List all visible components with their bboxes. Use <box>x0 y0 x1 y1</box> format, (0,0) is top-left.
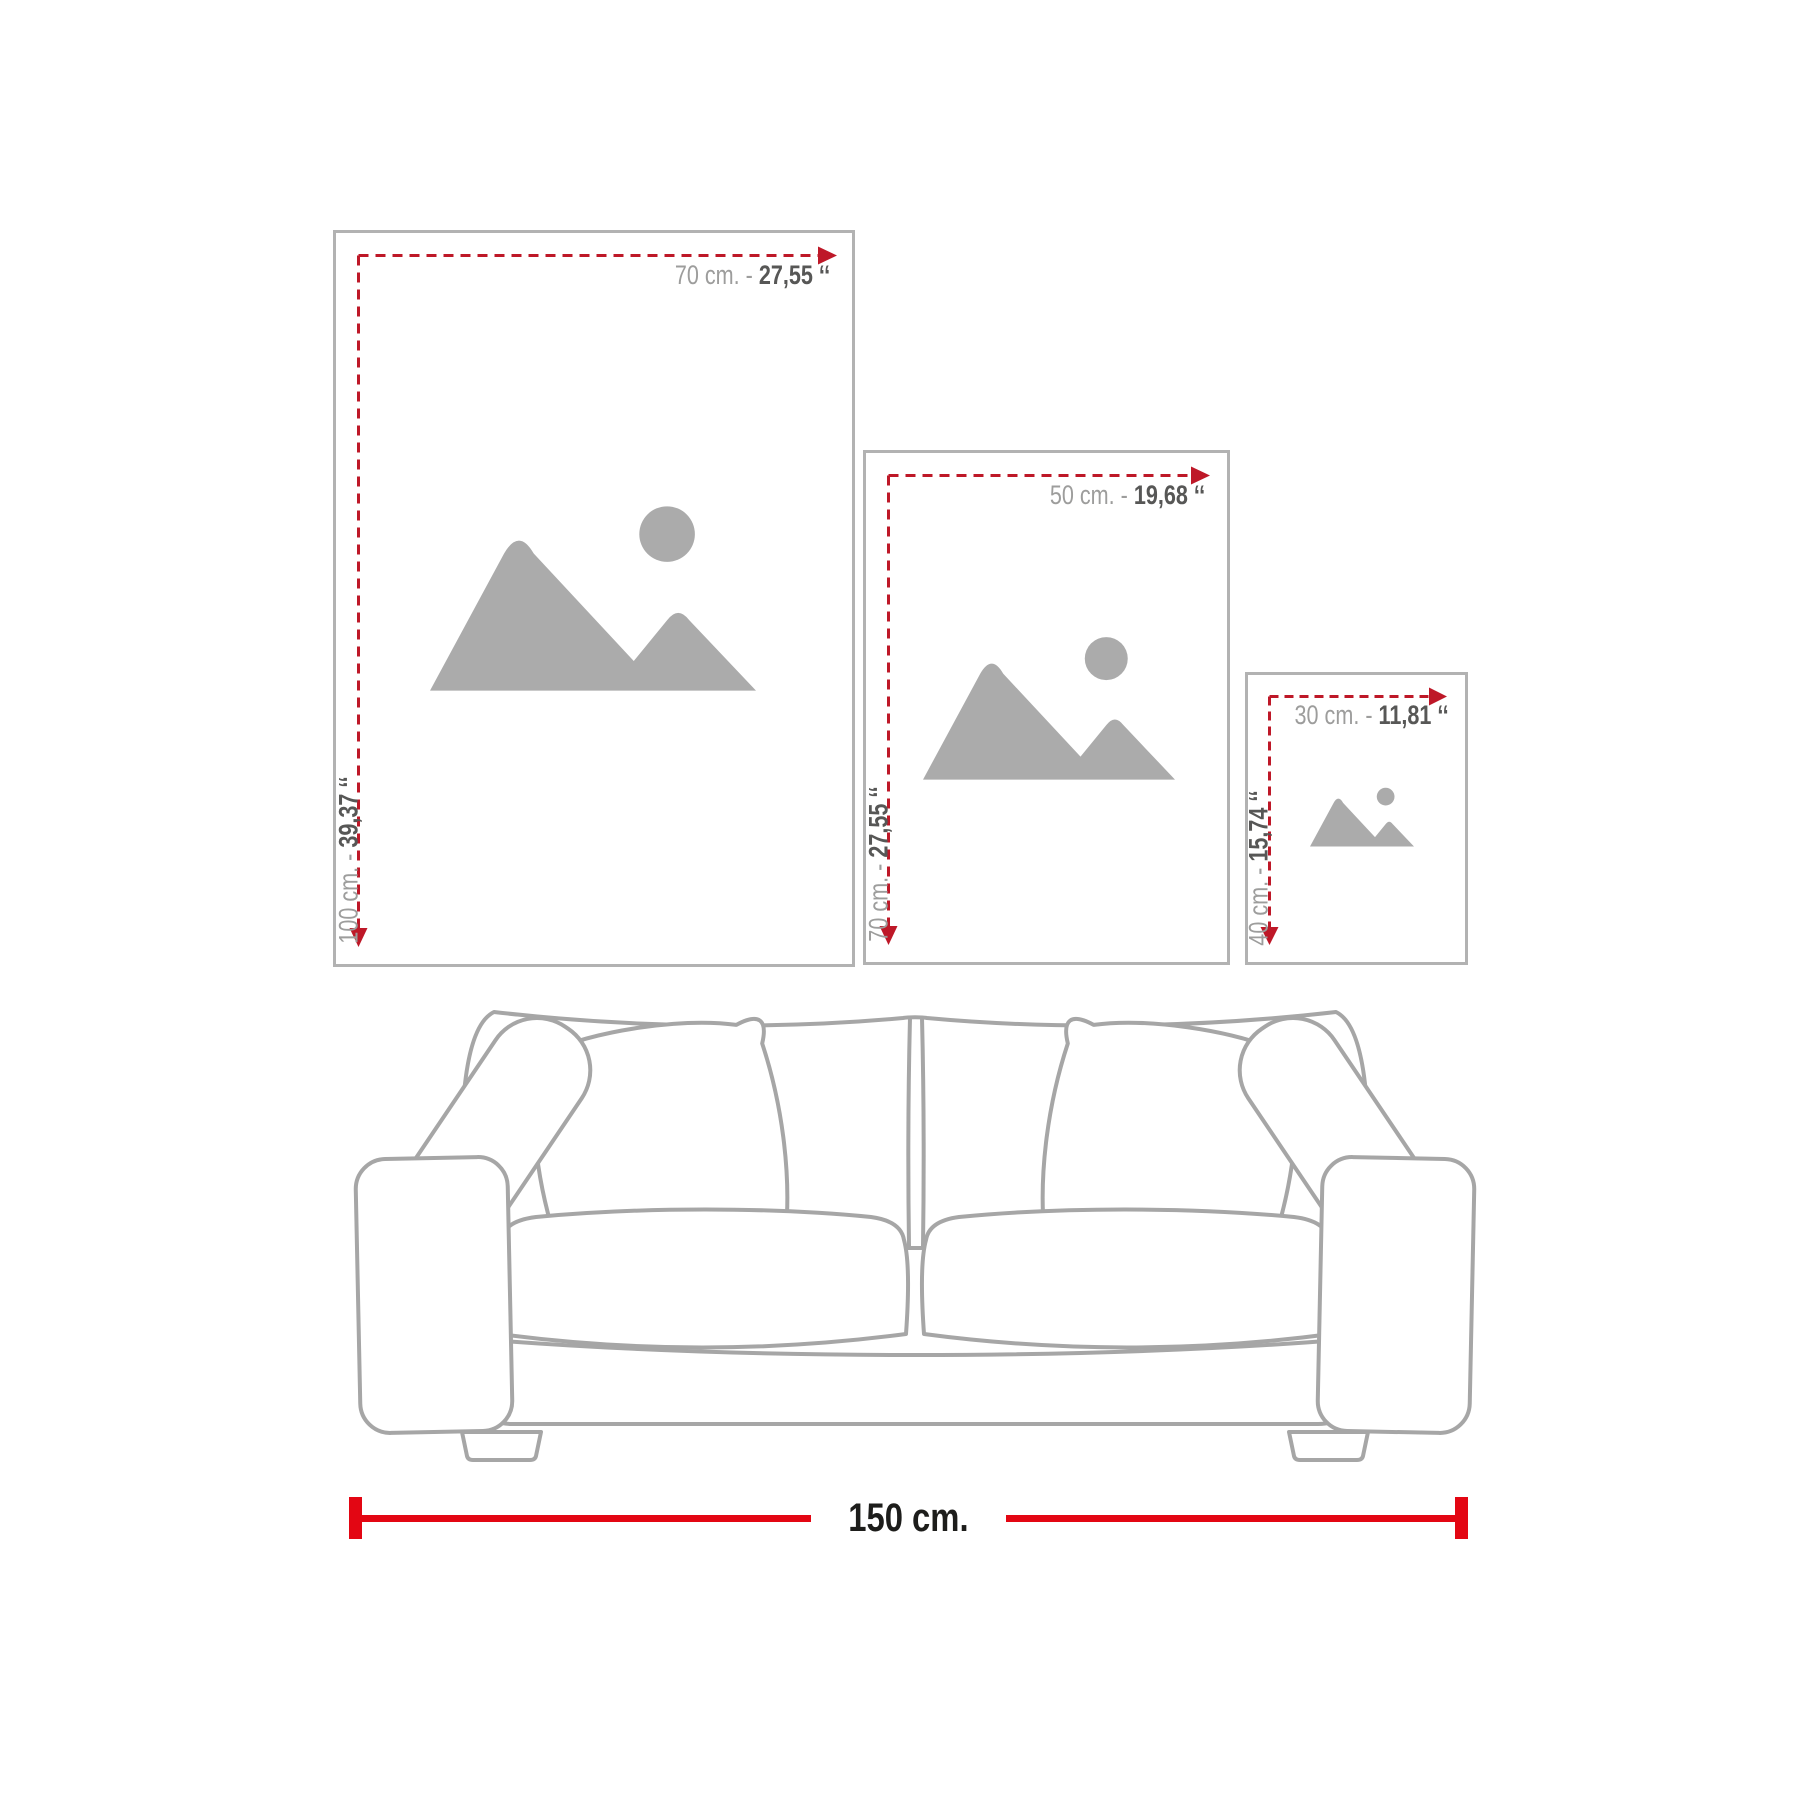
sofa-width-value: 150 cm. <box>848 1498 968 1538</box>
width-dimension-label: 50 cm. - 19,68 ‘‘ <box>1011 481 1205 511</box>
height-cm-value: 70 cm. - <box>863 858 893 942</box>
sofa-seat-cushion-left <box>497 1210 908 1348</box>
image-placeholder-icon <box>430 505 756 691</box>
sofa-illustration <box>350 988 1480 1464</box>
width-inch-value: 19,68 ‘‘ <box>1134 480 1205 510</box>
sofa-arm-right <box>1317 1156 1475 1433</box>
measure-endcap-left <box>349 1497 362 1539</box>
height-dimension-label: 40 cm. - 15,74 ‘‘ <box>1244 752 1274 946</box>
sofa-seat-cushion-right <box>922 1210 1333 1348</box>
width-inch-value: 27,55 ‘‘ <box>759 260 830 290</box>
height-inch-value: 15,74 ‘‘ <box>1243 791 1273 862</box>
print-frame-small: 30 cm. - 11,81 ‘‘ 40 cm. - 15,74 ‘‘ <box>1245 672 1468 965</box>
height-inch-value: 39,37 ‘‘ <box>333 777 363 848</box>
measure-rule-left <box>362 1515 811 1522</box>
height-dimension-label: 70 cm. - 27,55 ‘‘ <box>864 748 894 942</box>
height-cm-value: 100 cm. - <box>333 848 363 944</box>
width-dimension-label: 30 cm. - 11,81 ‘‘ <box>1256 701 1449 731</box>
height-inch-value: 27,55 ‘‘ <box>863 787 893 858</box>
sofa-arm-left <box>355 1156 513 1433</box>
sofa-foot-left <box>462 1432 541 1460</box>
width-cm-value: 30 cm. - <box>1295 700 1379 730</box>
image-placeholder-icon <box>923 636 1175 780</box>
width-cm-value: 70 cm. - <box>675 260 759 290</box>
size-guide-diagram: { "colors": { "dash_red": "#be1828", "br… <box>0 0 1800 1800</box>
measure-endcap-right <box>1455 1497 1468 1539</box>
sofa-foot-right <box>1289 1432 1368 1460</box>
width-dimension-label: 70 cm. - 27,55 ‘‘ <box>636 261 830 291</box>
height-cm-value: 40 cm. - <box>1243 862 1273 946</box>
sofa-width-measure: 150 cm. <box>349 1497 1468 1539</box>
height-dimension-label: 100 cm. - 39,37 ‘‘ <box>334 735 364 944</box>
image-placeholder-icon <box>1310 787 1414 847</box>
width-cm-value: 50 cm. - <box>1050 480 1134 510</box>
print-frame-large: 70 cm. - 27,55 ‘‘ 100 cm. - 39,37 ‘‘ <box>333 230 855 967</box>
print-frame-medium: 50 cm. - 19,68 ‘‘ 70 cm. - 27,55 ‘‘ <box>863 450 1230 965</box>
measure-rule-right <box>1006 1515 1455 1522</box>
width-inch-value: 11,81 ‘‘ <box>1379 700 1449 730</box>
